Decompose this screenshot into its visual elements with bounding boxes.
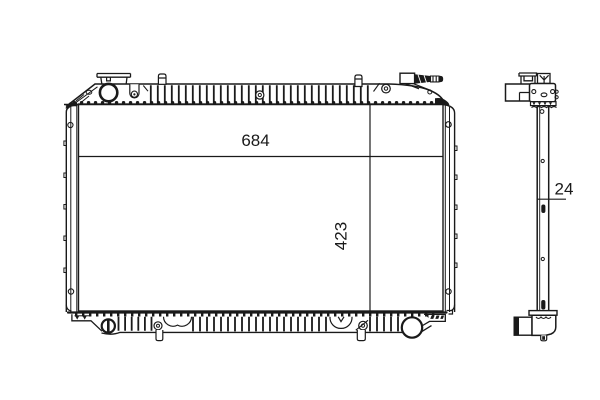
svg-text:24: 24 [555,180,574,199]
svg-text:684: 684 [241,131,269,150]
svg-text:423: 423 [332,222,351,250]
